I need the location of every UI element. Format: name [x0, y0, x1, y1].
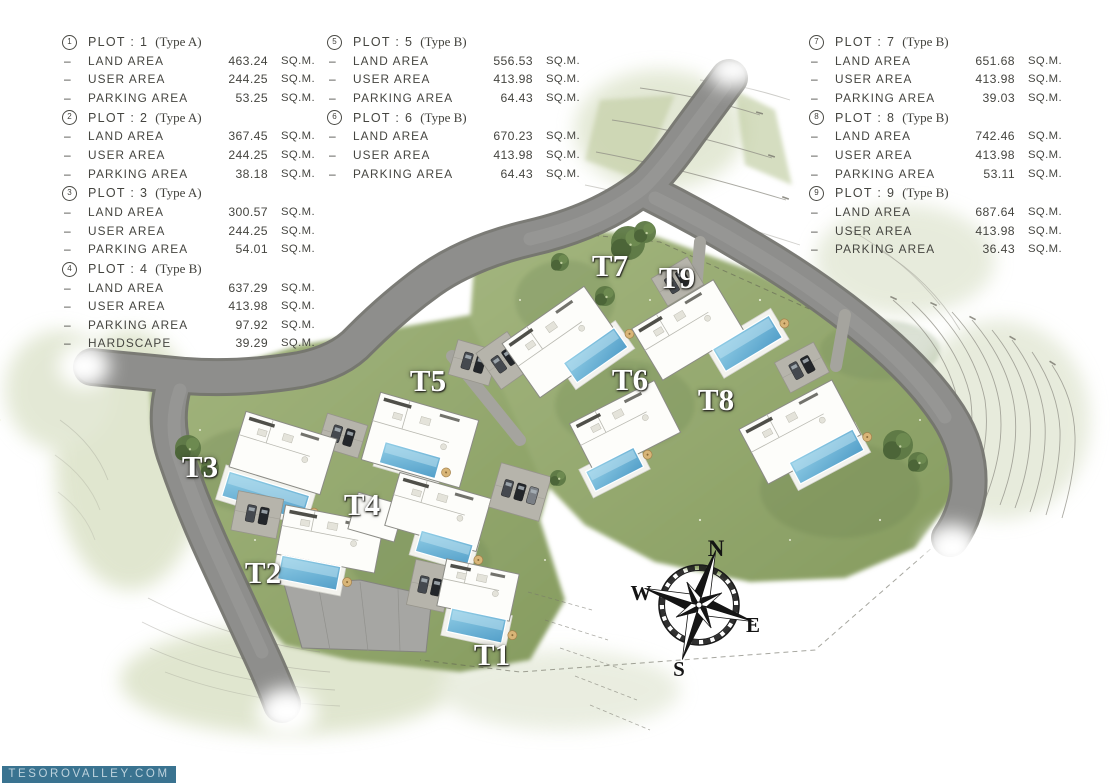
row-dash: –	[62, 167, 88, 181]
plot-number-badge: 9	[809, 186, 824, 201]
plot-number-badge: 2	[62, 110, 77, 125]
row-dash: –	[327, 167, 353, 181]
area-label: LAND AREA	[88, 205, 218, 219]
area-value: 413.98	[218, 299, 268, 313]
plot-area-row: –LAND AREA637.29SQ.M.	[62, 278, 318, 297]
area-value: 64.43	[483, 167, 533, 181]
villa-label-t2: T2	[245, 555, 281, 591]
area-label: USER AREA	[88, 224, 218, 238]
area-label: USER AREA	[353, 148, 483, 162]
plot-area-row: –USER AREA413.98SQ.M.	[62, 297, 318, 316]
row-dash: –	[62, 224, 88, 238]
area-value: 413.98	[965, 148, 1015, 162]
plot-area-row: –USER AREA413.98SQ.M.	[327, 146, 583, 165]
plot-area-row: –USER AREA244.25SQ.M.	[62, 70, 318, 89]
area-value: 39.29	[218, 336, 268, 350]
area-unit: SQ.M.	[281, 206, 318, 218]
plot-title: PLOT : 2	[88, 111, 148, 125]
row-dash: –	[62, 205, 88, 219]
area-value: 413.98	[483, 72, 533, 86]
area-value: 53.25	[218, 91, 268, 105]
plot-area-row: –LAND AREA742.46SQ.M.	[809, 127, 1065, 146]
row-dash: –	[327, 91, 353, 105]
area-value: 556.53	[483, 54, 533, 68]
area-label: LAND AREA	[88, 129, 218, 143]
area-label: LAND AREA	[835, 205, 965, 219]
plot-area-row: –PARKING AREA64.43SQ.M.	[327, 164, 583, 183]
area-value: 463.24	[218, 54, 268, 68]
area-value: 367.45	[218, 129, 268, 143]
plot-type: (Type B)	[902, 110, 948, 126]
area-label: LAND AREA	[835, 129, 965, 143]
row-dash: –	[809, 129, 835, 143]
area-value: 64.43	[483, 91, 533, 105]
area-unit: SQ.M.	[1028, 206, 1065, 218]
plot-number-badge: 5	[327, 35, 342, 50]
row-dash: –	[809, 54, 835, 68]
plot-type: (Type A)	[155, 110, 201, 126]
plot-header: 2PLOT : 2(Type A)	[62, 109, 318, 128]
area-value: 637.29	[218, 281, 268, 295]
area-label: LAND AREA	[353, 54, 483, 68]
area-unit: SQ.M.	[546, 130, 583, 142]
watermark: TESOROVALLEY.COM	[2, 766, 176, 783]
area-label: LAND AREA	[88, 281, 218, 295]
plot-header: 1PLOT : 1(Type A)	[62, 33, 318, 52]
plot-area-row: –HARDSCAPE39.29SQ.M.	[62, 334, 318, 353]
row-dash: –	[809, 91, 835, 105]
plot-legend-entry-5: 5PLOT : 5(Type B)–LAND AREA556.53SQ.M.–U…	[327, 33, 583, 107]
area-unit: SQ.M.	[281, 225, 318, 237]
area-value: 413.98	[483, 148, 533, 162]
row-dash: –	[809, 148, 835, 162]
plot-title: PLOT : 8	[835, 111, 895, 125]
area-label: USER AREA	[835, 72, 965, 86]
area-unit: SQ.M.	[281, 300, 318, 312]
plot-area-row: –USER AREA413.98SQ.M.	[809, 146, 1065, 165]
area-value: 54.01	[218, 242, 268, 256]
area-value: 244.25	[218, 224, 268, 238]
plot-legend-entry-2: 2PLOT : 2(Type A)–LAND AREA367.45SQ.M.–U…	[62, 109, 318, 183]
area-label: USER AREA	[835, 224, 965, 238]
plot-area-row: –PARKING AREA39.03SQ.M.	[809, 89, 1065, 108]
area-value: 38.18	[218, 167, 268, 181]
row-dash: –	[62, 148, 88, 162]
plot-type: (Type B)	[420, 34, 466, 50]
plot-header: 6PLOT : 6(Type B)	[327, 109, 583, 128]
row-dash: –	[62, 281, 88, 295]
plot-area-row: –LAND AREA687.64SQ.M.	[809, 203, 1065, 222]
compass-letter-n: N	[708, 536, 725, 561]
area-value: 39.03	[965, 91, 1015, 105]
area-unit: SQ.M.	[546, 149, 583, 161]
row-dash: –	[62, 129, 88, 143]
area-value: 97.92	[218, 318, 268, 332]
area-label: USER AREA	[835, 148, 965, 162]
plot-type: (Type B)	[902, 185, 948, 201]
area-label: PARKING AREA	[835, 242, 965, 256]
villa-label-t1: T1	[474, 637, 510, 673]
area-label: USER AREA	[88, 72, 218, 86]
area-unit: SQ.M.	[546, 168, 583, 180]
plot-type: (Type A)	[155, 34, 201, 50]
area-value: 687.64	[965, 205, 1015, 219]
area-value: 670.23	[483, 129, 533, 143]
row-dash: –	[62, 54, 88, 68]
plot-area-row: –LAND AREA651.68SQ.M.	[809, 52, 1065, 71]
row-dash: –	[62, 72, 88, 86]
plot-area-row: –PARKING AREA38.18SQ.M.	[62, 164, 318, 183]
area-label: USER AREA	[88, 148, 218, 162]
area-value: 651.68	[965, 54, 1015, 68]
area-label: PARKING AREA	[88, 167, 218, 181]
plot-legend-entry-4: 4PLOT : 4(Type B)–LAND AREA637.29SQ.M.–U…	[62, 260, 318, 353]
plot-header: 5PLOT : 5(Type B)	[327, 33, 583, 52]
plot-title: PLOT : 9	[835, 186, 895, 200]
plot-area-row: –PARKING AREA53.25SQ.M.	[62, 89, 318, 108]
area-label: PARKING AREA	[88, 242, 218, 256]
plot-type: (Type A)	[155, 185, 201, 201]
row-dash: –	[327, 129, 353, 143]
plot-header: 8PLOT : 8(Type B)	[809, 109, 1065, 128]
area-value: 413.98	[965, 72, 1015, 86]
plot-title: PLOT : 6	[353, 111, 413, 125]
row-dash: –	[327, 54, 353, 68]
plot-type: (Type B)	[902, 34, 948, 50]
plot-title: PLOT : 1	[88, 35, 148, 49]
plot-area-row: –PARKING AREA97.92SQ.M.	[62, 316, 318, 335]
area-unit: SQ.M.	[1028, 130, 1065, 142]
compass-letter-e: E	[746, 613, 760, 637]
tree	[908, 452, 928, 472]
area-label: USER AREA	[353, 72, 483, 86]
tree	[551, 253, 569, 271]
plot-area-row: –PARKING AREA53.11SQ.M.	[809, 164, 1065, 183]
area-unit: SQ.M.	[281, 92, 318, 104]
area-unit: SQ.M.	[1028, 243, 1065, 255]
area-unit: SQ.M.	[281, 149, 318, 161]
villa-label-t8: T8	[698, 382, 734, 418]
row-dash: –	[809, 167, 835, 181]
area-label: USER AREA	[88, 299, 218, 313]
plot-legend-entry-8: 8PLOT : 8(Type B)–LAND AREA742.46SQ.M.–U…	[809, 109, 1065, 183]
plot-title: PLOT : 3	[88, 186, 148, 200]
plot-header: 9PLOT : 9(Type B)	[809, 184, 1065, 203]
tree	[595, 286, 615, 306]
area-unit: SQ.M.	[546, 92, 583, 104]
row-dash: –	[809, 224, 835, 238]
plot-header: 4PLOT : 4(Type B)	[62, 260, 318, 279]
area-value: 244.25	[218, 148, 268, 162]
plot-legend-entry-9: 9PLOT : 9(Type B)–LAND AREA687.64SQ.M.–U…	[809, 184, 1065, 258]
plot-header: 3PLOT : 3(Type A)	[62, 184, 318, 203]
area-unit: SQ.M.	[281, 168, 318, 180]
area-label: PARKING AREA	[353, 167, 483, 181]
plot-area-row: –USER AREA413.98SQ.M.	[327, 70, 583, 89]
area-value: 53.11	[965, 167, 1015, 181]
area-label: LAND AREA	[88, 54, 218, 68]
compass-letter-w: W	[631, 581, 652, 605]
plot-title: PLOT : 7	[835, 35, 895, 49]
plot-area-row: –USER AREA413.98SQ.M.	[809, 70, 1065, 89]
area-unit: SQ.M.	[1028, 225, 1065, 237]
area-unit: SQ.M.	[281, 73, 318, 85]
area-unit: SQ.M.	[1028, 55, 1065, 67]
area-unit: SQ.M.	[1028, 168, 1065, 180]
area-label: PARKING AREA	[835, 167, 965, 181]
plot-title: PLOT : 5	[353, 35, 413, 49]
area-unit: SQ.M.	[281, 55, 318, 67]
area-label: PARKING AREA	[88, 318, 218, 332]
tree	[634, 221, 656, 243]
area-value: 36.43	[965, 242, 1015, 256]
area-label: HARDSCAPE	[88, 336, 218, 350]
compass-letter-s: S	[673, 657, 685, 681]
area-value: 244.25	[218, 72, 268, 86]
plot-title: PLOT : 4	[88, 262, 148, 276]
area-unit: SQ.M.	[281, 243, 318, 255]
row-dash: –	[62, 91, 88, 105]
area-unit: SQ.M.	[1028, 73, 1065, 85]
plot-number-badge: 3	[62, 186, 77, 201]
plot-area-row: –PARKING AREA64.43SQ.M.	[327, 89, 583, 108]
plot-area-row: –PARKING AREA36.43SQ.M.	[809, 240, 1065, 259]
plot-legend-entry-1: 1PLOT : 1(Type A)–LAND AREA463.24SQ.M.–U…	[62, 33, 318, 107]
row-dash: –	[62, 318, 88, 332]
plot-area-row: –LAND AREA367.45SQ.M.	[62, 127, 318, 146]
area-value: 742.46	[965, 129, 1015, 143]
row-dash: –	[62, 299, 88, 313]
area-label: PARKING AREA	[353, 91, 483, 105]
plot-number-badge: 6	[327, 110, 342, 125]
area-label: LAND AREA	[353, 129, 483, 143]
area-unit: SQ.M.	[1028, 92, 1065, 104]
row-dash: –	[327, 148, 353, 162]
area-value: 300.57	[218, 205, 268, 219]
plot-legend-entry-7: 7PLOT : 7(Type B)–LAND AREA651.68SQ.M.–U…	[809, 33, 1065, 107]
plot-legend-entry-3: 3PLOT : 3(Type A)–LAND AREA300.57SQ.M.–U…	[62, 184, 318, 258]
area-unit: SQ.M.	[546, 55, 583, 67]
plot-area-row: –PARKING AREA54.01SQ.M.	[62, 240, 318, 259]
plot-legend-entry-6: 6PLOT : 6(Type B)–LAND AREA670.23SQ.M.–U…	[327, 109, 583, 183]
plot-number-badge: 4	[62, 262, 77, 277]
plot-header: 7PLOT : 7(Type B)	[809, 33, 1065, 52]
row-dash: –	[62, 242, 88, 256]
plot-type: (Type B)	[420, 110, 466, 126]
tree	[550, 470, 566, 486]
plot-area-row: –USER AREA244.25SQ.M.	[62, 146, 318, 165]
area-unit: SQ.M.	[281, 130, 318, 142]
area-unit: SQ.M.	[546, 73, 583, 85]
area-value: 413.98	[965, 224, 1015, 238]
row-dash: –	[809, 242, 835, 256]
plot-number-badge: 1	[62, 35, 77, 50]
villa-label-t3: T3	[182, 449, 218, 485]
villa-label-t9: T9	[659, 260, 695, 296]
villa-label-t4: T4	[344, 487, 380, 523]
tree	[883, 430, 913, 460]
area-unit: SQ.M.	[1028, 149, 1065, 161]
row-dash: –	[327, 72, 353, 86]
villa-label-t7: T7	[592, 248, 628, 284]
plot-area-row: –USER AREA244.25SQ.M.	[62, 221, 318, 240]
area-label: PARKING AREA	[835, 91, 965, 105]
villa-label-t5: T5	[410, 363, 446, 399]
area-unit: SQ.M.	[281, 319, 318, 331]
row-dash: –	[62, 336, 88, 350]
plot-number-badge: 8	[809, 110, 824, 125]
plot-area-row: –LAND AREA300.57SQ.M.	[62, 203, 318, 222]
area-unit: SQ.M.	[281, 337, 318, 349]
plot-area-row: –LAND AREA463.24SQ.M.	[62, 52, 318, 71]
plot-area-row: –LAND AREA670.23SQ.M.	[327, 127, 583, 146]
area-label: LAND AREA	[835, 54, 965, 68]
plot-area-row: –LAND AREA556.53SQ.M.	[327, 52, 583, 71]
area-label: PARKING AREA	[88, 91, 218, 105]
row-dash: –	[809, 72, 835, 86]
plot-area-row: –USER AREA413.98SQ.M.	[809, 221, 1065, 240]
site-plan-page: N W E S 1PLOT : 1(Type A)–LAND AREA463.2…	[0, 0, 1112, 783]
plot-number-badge: 7	[809, 35, 824, 50]
row-dash: –	[809, 205, 835, 219]
villa-label-t6: T6	[612, 362, 648, 398]
plot-type: (Type B)	[155, 261, 201, 277]
area-unit: SQ.M.	[281, 282, 318, 294]
